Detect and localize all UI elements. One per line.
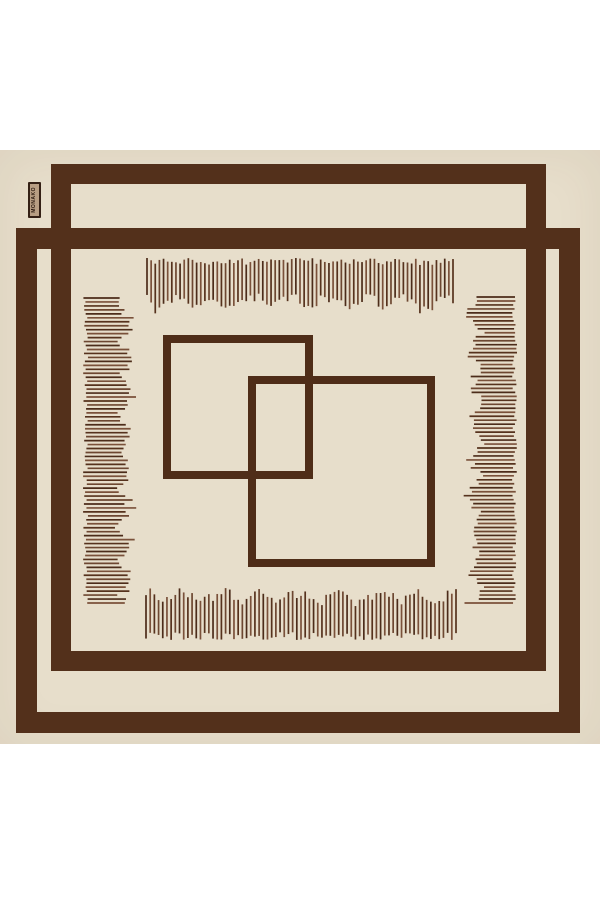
scarf-panel: MONAKO bbox=[0, 150, 600, 744]
product-image: MONAKO bbox=[0, 0, 600, 900]
scarf-pattern bbox=[0, 150, 600, 744]
center-square-1 bbox=[167, 339, 309, 475]
fringe-left bbox=[83, 298, 136, 603]
brand-label: MONAKO bbox=[28, 182, 41, 218]
brand-label-text: MONAKO bbox=[32, 187, 37, 213]
fringe-top bbox=[147, 258, 453, 313]
fringe-bottom bbox=[146, 588, 456, 640]
fringe-right bbox=[464, 297, 517, 603]
